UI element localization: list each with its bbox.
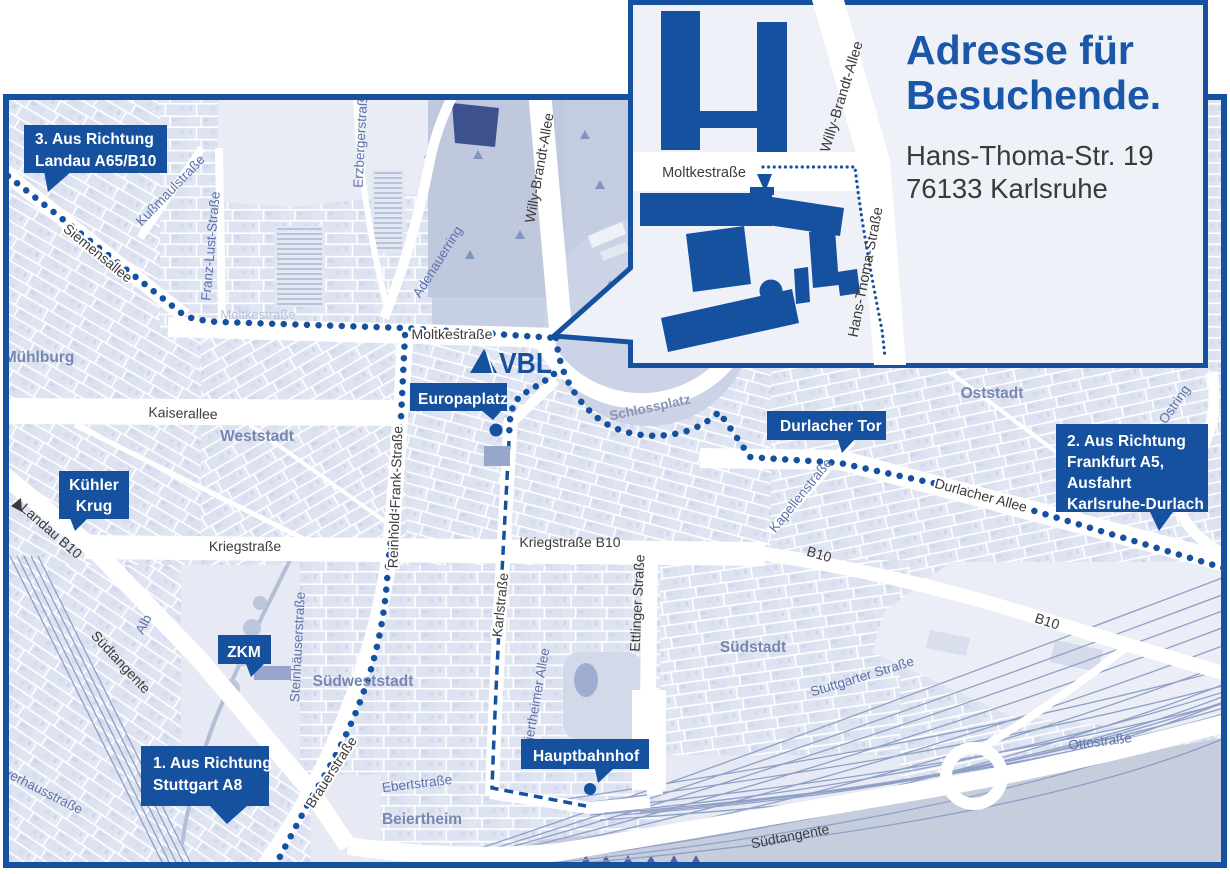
svg-text:Ausfahrt: Ausfahrt bbox=[1067, 475, 1132, 492]
svg-text:Besuchende.: Besuchende. bbox=[906, 72, 1161, 118]
svg-text:Hauptbahnhof: Hauptbahnhof bbox=[533, 748, 640, 765]
svg-text:Südstadt: Südstadt bbox=[720, 639, 786, 656]
svg-text:Kriegstraße B10: Kriegstraße B10 bbox=[519, 534, 620, 550]
svg-text:Landau A65/B10: Landau A65/B10 bbox=[35, 153, 156, 170]
svg-text:VBL: VBL bbox=[499, 348, 552, 380]
svg-text:Kaiserallee: Kaiserallee bbox=[148, 404, 218, 422]
svg-text:Hans-Thoma-Str. 19: Hans-Thoma-Str. 19 bbox=[906, 140, 1154, 171]
svg-text:76133 Karlsruhe: 76133 Karlsruhe bbox=[906, 173, 1108, 204]
svg-text:Moltkestraße: Moltkestraße bbox=[220, 307, 295, 322]
svg-text:Weststadt: Weststadt bbox=[220, 428, 294, 445]
svg-text:Kriegstraße: Kriegstraße bbox=[209, 538, 282, 554]
svg-text:Beiertheim: Beiertheim bbox=[382, 811, 462, 828]
svg-text:2. Aus Richtung: 2. Aus Richtung bbox=[1067, 433, 1186, 450]
svg-text:Europaplatz: Europaplatz bbox=[418, 391, 508, 408]
svg-text:Adresse für: Adresse für bbox=[906, 27, 1134, 73]
svg-text:ZKM: ZKM bbox=[227, 644, 261, 661]
svg-text:Kühler: Kühler bbox=[69, 477, 119, 494]
svg-text:Moltkestraße: Moltkestraße bbox=[662, 165, 746, 181]
svg-text:Moltkestraße: Moltkestraße bbox=[412, 326, 493, 342]
svg-text:3. Aus Richtung: 3. Aus Richtung bbox=[35, 131, 154, 148]
svg-text:Krug: Krug bbox=[76, 498, 113, 515]
svg-text:Südweststadt: Südweststadt bbox=[313, 673, 414, 690]
svg-text:Stuttgart A8: Stuttgart A8 bbox=[153, 777, 243, 794]
svg-text:Oststadt: Oststadt bbox=[961, 385, 1024, 402]
svg-text:1. Aus Richtung: 1. Aus Richtung bbox=[153, 755, 272, 772]
svg-text:Durlacher Tor: Durlacher Tor bbox=[780, 418, 882, 435]
svg-text:Karlsruhe-Durlach: Karlsruhe-Durlach bbox=[1067, 496, 1204, 513]
svg-text:Mühlburg: Mühlburg bbox=[4, 349, 75, 366]
svg-text:Frankfurt A5,: Frankfurt A5, bbox=[1067, 454, 1164, 471]
